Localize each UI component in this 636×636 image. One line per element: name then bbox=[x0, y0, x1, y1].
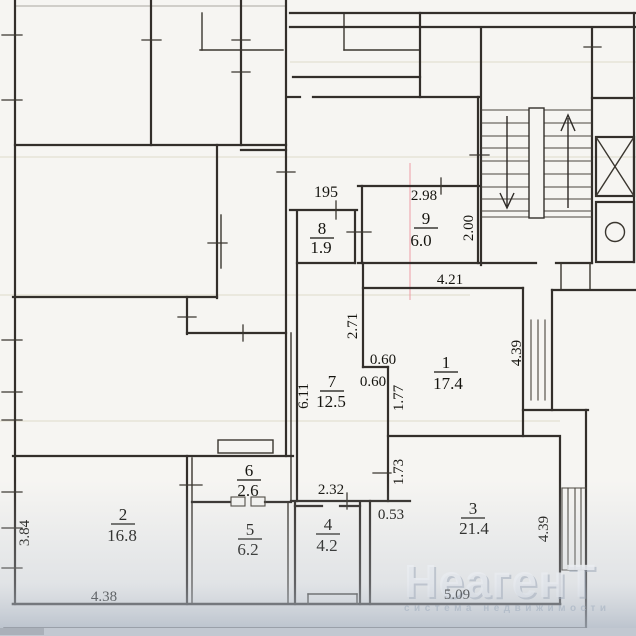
dim-4-39-room1: 4.39 bbox=[509, 340, 525, 366]
dim-0-60-a: 0.60 bbox=[370, 352, 396, 368]
room-9-area: 6.0 bbox=[410, 231, 431, 250]
room-9-number: 9 bbox=[422, 209, 431, 228]
apartment-number-label: 195 bbox=[314, 184, 338, 201]
room-1-area: 17.4 bbox=[433, 374, 463, 393]
floor-plan-scan: НеагенТ НеагенТ система недвижимости 1 1… bbox=[0, 0, 636, 636]
room-7-number: 7 bbox=[328, 372, 337, 391]
floor-plan-drawing: НеагенТ НеагенТ система недвижимости 1 1… bbox=[0, 0, 636, 636]
room-7-area: 12.5 bbox=[316, 392, 346, 411]
room-6-number: 6 bbox=[245, 461, 254, 480]
dim-6-11: 6.11 bbox=[296, 383, 312, 409]
dim-4-21: 4.21 bbox=[437, 272, 463, 288]
stair-divider-wall bbox=[529, 108, 544, 218]
scan-shading bbox=[0, 480, 636, 636]
dim-1-77: 1.77 bbox=[391, 384, 407, 411]
dim-2-71: 2.71 bbox=[345, 313, 361, 339]
room-1-number: 1 bbox=[442, 353, 451, 372]
dim-2-00: 2.00 bbox=[461, 215, 477, 241]
room-8-area: 1.9 bbox=[310, 238, 331, 257]
room-8-number: 8 bbox=[318, 219, 327, 238]
dim-2-98: 2.98 bbox=[411, 188, 437, 204]
dim-0-60-b: 0.60 bbox=[360, 374, 386, 390]
